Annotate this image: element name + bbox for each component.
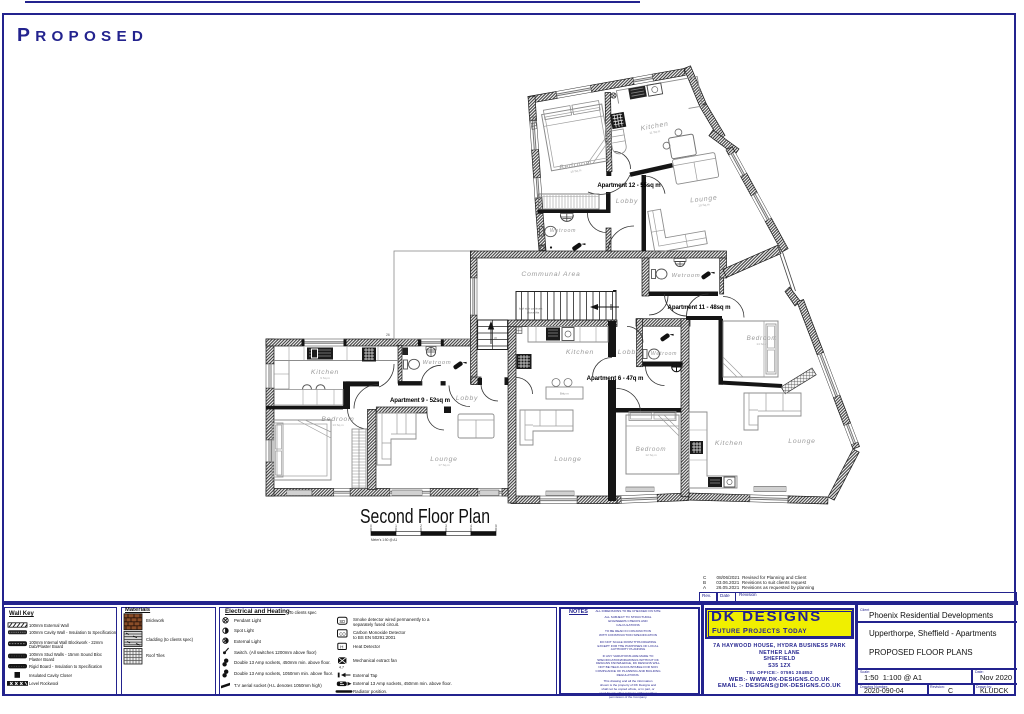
svg-text:Lobby: Lobby — [618, 349, 641, 356]
svg-text:Wetroom: Wetroom — [671, 273, 700, 279]
svg-text:Lounge: Lounge — [788, 438, 815, 445]
svg-text:Wetroom: Wetroom — [651, 351, 678, 357]
svg-text:14 Sq.m: 14 Sq.m — [756, 342, 768, 346]
svg-text:Brky m: Brky m — [560, 392, 569, 396]
svg-text:Apartment 12 - 55sq m: Apartment 12 - 55sq m — [597, 182, 661, 189]
svg-text:Bedroom: Bedroom — [747, 335, 778, 342]
svg-text:11 Sq.m: 11 Sq.m — [649, 129, 661, 135]
svg-text:Apartment 11 - 48sq m: Apartment 11 - 48sq m — [668, 304, 732, 311]
svg-text:19 Sq.m: 19 Sq.m — [698, 202, 710, 207]
svg-text:Apartment 6 - 47q m: Apartment 6 - 47q m — [587, 375, 644, 382]
svg-text:Bedroom: Bedroom — [636, 446, 667, 453]
svg-text:12 Sq.m: 12 Sq.m — [645, 453, 657, 457]
svg-text:Lobby: Lobby — [616, 198, 639, 205]
svg-text:Kitchen: Kitchen — [566, 349, 594, 356]
svg-text:Kitchen: Kitchen — [715, 440, 743, 447]
svg-text:19 Sq.m: 19 Sq.m — [570, 168, 582, 174]
